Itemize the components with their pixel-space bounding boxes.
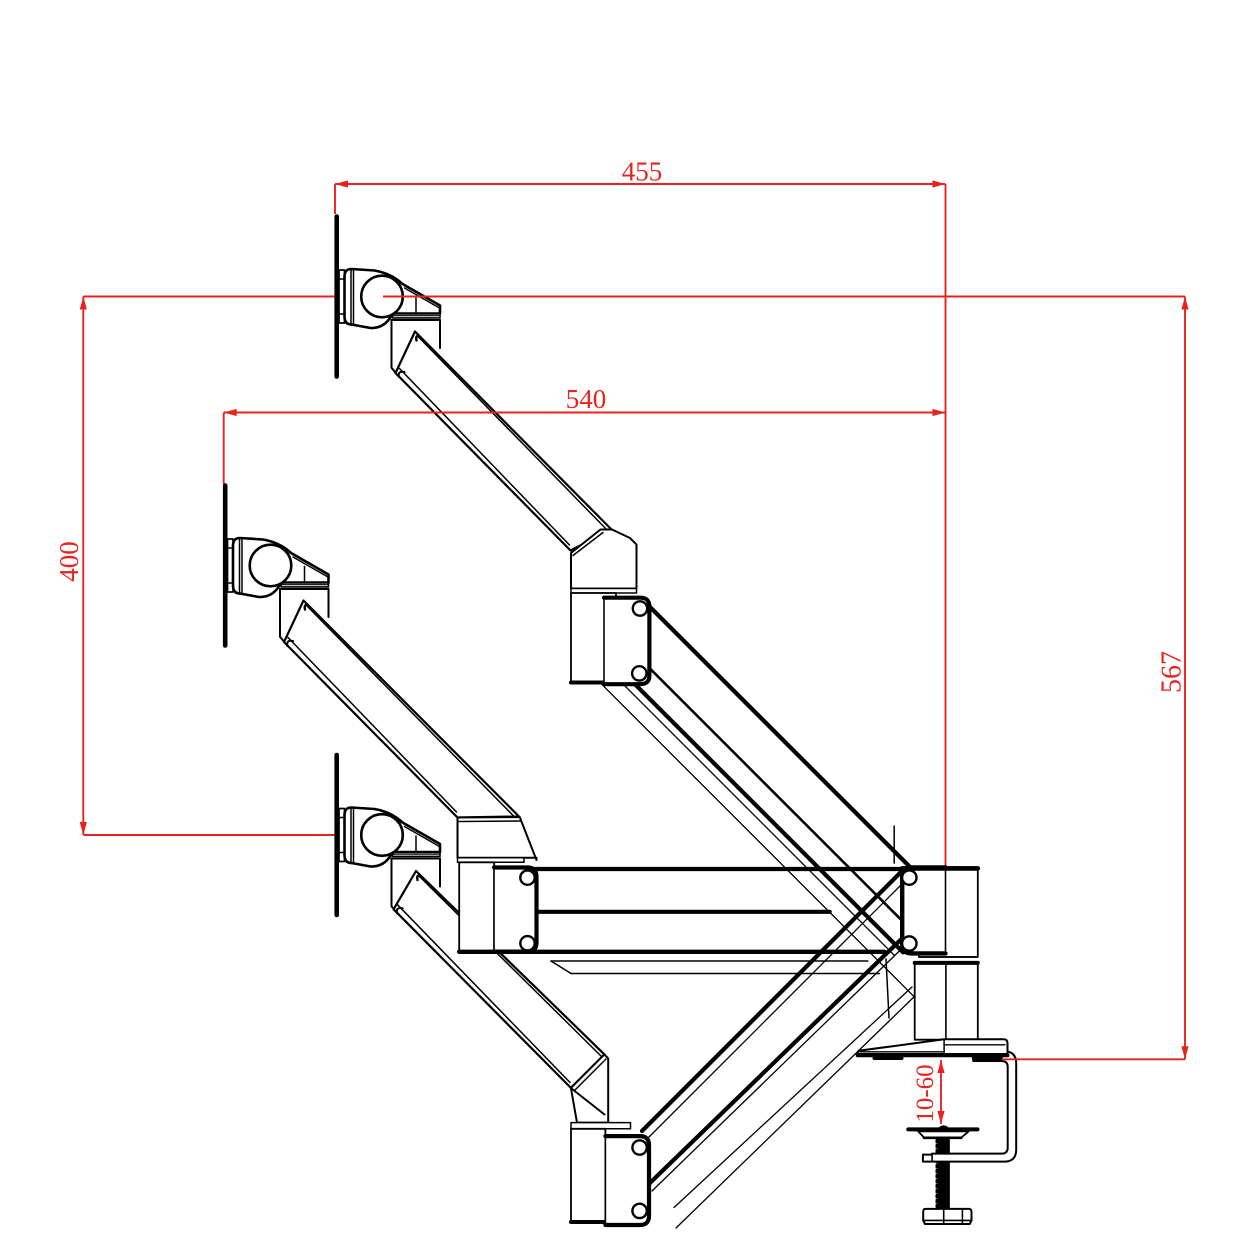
svg-text:400: 400: [54, 541, 84, 582]
svg-text:455: 455: [622, 157, 663, 187]
svg-text:540: 540: [566, 384, 607, 414]
svg-text:10-60: 10-60: [912, 1064, 939, 1122]
svg-text:567: 567: [1157, 651, 1188, 693]
